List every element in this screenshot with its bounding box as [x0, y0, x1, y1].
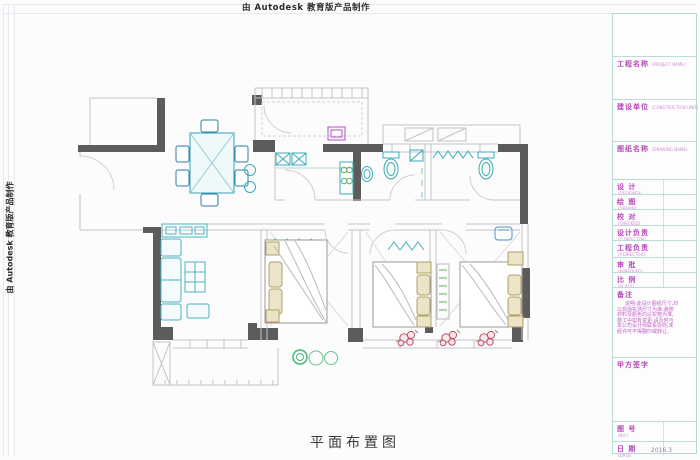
- client-signature-label: 甲方签字: [613, 358, 696, 370]
- tb-row-approved: 审 批(APPROVED): [613, 257, 696, 272]
- drawing-name-sub: (DRAWING NAME): [651, 148, 688, 152]
- drawing-name-label: 图纸名称: [613, 142, 649, 154]
- tb-construction-unit: 建设单位(CONSTRUCTION UNIT): [613, 99, 696, 141]
- bath2-toilet: [478, 152, 494, 179]
- tb-row-checked: 校 对(CHECKED): [613, 209, 696, 225]
- balcony-plants: [293, 350, 338, 365]
- construction-unit-label: 建设单位: [613, 100, 649, 112]
- walls-light: [80, 88, 528, 385]
- title-block: 工程名称(PROJECT NAME) 建设单位(CONSTRUCTION UNI…: [612, 13, 697, 454]
- tb-remarks: 备注 说明:此设计图纸尺寸,均 以现场实测尺寸为准,装修 材料及颜色均以实物为准…: [613, 287, 696, 357]
- wardrobe-bed3: [437, 264, 449, 319]
- bed3-chair: [495, 227, 512, 240]
- coffee-table: [185, 262, 205, 292]
- dining-table: [190, 133, 234, 193]
- tb-row-designer: 设 计(DESIGNER): [613, 179, 696, 194]
- bath1-toilet: [383, 152, 399, 179]
- project-name-sub: (PROJECT NAME): [651, 63, 685, 67]
- floor-plan: [70, 80, 550, 400]
- bath1-basin: [362, 167, 373, 182]
- wardrobe-bed2: [388, 242, 424, 250]
- remarks-text: 说明:此设计图纸尺寸,均 以现场实测尺寸为准,装修 材料及颜色均以实物为准, 施…: [613, 300, 696, 336]
- kitchen-stove: [340, 162, 353, 194]
- bed-1: [265, 240, 327, 323]
- drawing-title: 平面布置图: [240, 432, 470, 452]
- tb-drawing-no: 图 号 (NO.): [613, 421, 696, 441]
- window-flowers: [396, 330, 498, 346]
- tb-client-signature: 甲方签字: [613, 357, 696, 421]
- tb-row-scale: 比 例(SCALE): [613, 272, 696, 287]
- bed-3: [460, 252, 523, 327]
- autodesk-banner-top: 由 Autodesk 教育版产品制作: [0, 1, 612, 13]
- bed-2: [373, 262, 431, 327]
- construction-unit-sub: (CONSTRUCTION UNIT): [651, 106, 698, 110]
- project-name-label: 工程名称: [613, 57, 649, 69]
- date-value: 2016.3: [651, 447, 672, 454]
- balcony-desk: [328, 127, 345, 140]
- remarks-label: 备注: [613, 288, 696, 300]
- autodesk-banner-left: 由 Autodesk 教育版产品制作: [5, 168, 16, 308]
- tb-header-box: [613, 14, 696, 56]
- tb-drawing-name: 图纸名称(DRAWING NAME): [613, 141, 696, 179]
- tb-row-drawn: 绘 图(DRAWN): [613, 194, 696, 209]
- tb-row-project-director: 工程负责(P.DIRECTOR): [613, 240, 696, 257]
- tb-project-name: 工程名称(PROJECT NAME): [613, 56, 696, 99]
- cad-sheet: { "banner": { "text": "由 Autodesk 教育版产品制…: [0, 0, 700, 460]
- sheet-border-top-2: [3, 13, 612, 14]
- tb-date: 日 期 (DATE) 2016.3: [613, 441, 696, 455]
- tb-row-design-director: 设计负责(D.DIRECTOR): [613, 225, 696, 240]
- kitchen-counter: [275, 153, 353, 168]
